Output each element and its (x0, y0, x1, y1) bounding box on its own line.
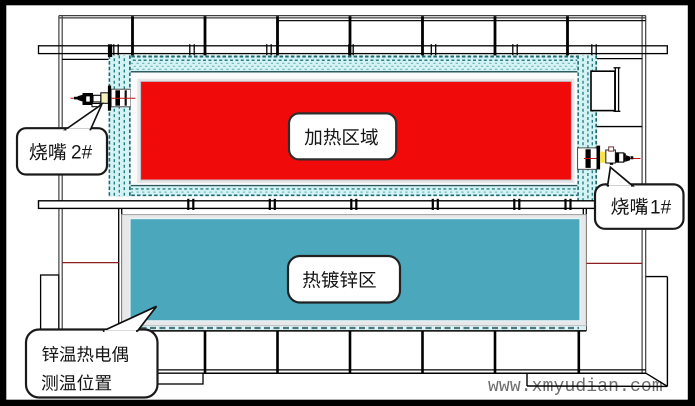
svg-text:1#: 1# (650, 197, 672, 218)
svg-text:2#: 2# (71, 143, 93, 164)
